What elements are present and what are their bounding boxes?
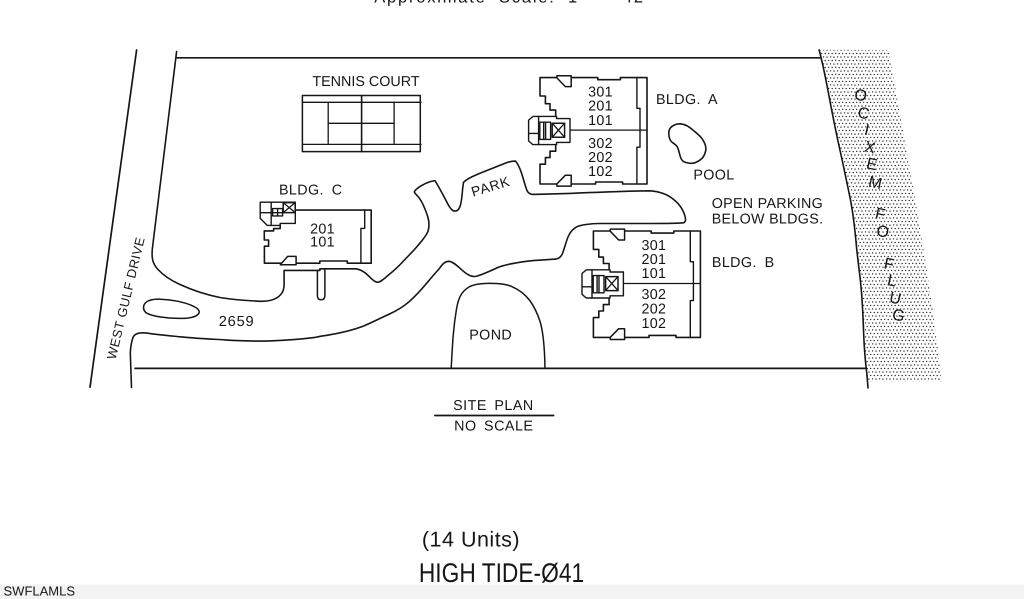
svg-text:WEST GULF DRIVE: WEST GULF DRIVE: [104, 235, 148, 360]
svg-text:TENNIS COURT: TENNIS COURT: [312, 74, 420, 90]
svg-text:POND: POND: [469, 327, 512, 343]
svg-text:102: 102: [588, 164, 613, 180]
svg-text:OPEN PARKING: OPEN PARKING: [712, 196, 823, 212]
svg-text:101: 101: [310, 235, 335, 251]
svg-text:302: 302: [642, 287, 667, 303]
svg-text:NO SCALE: NO SCALE: [454, 419, 533, 435]
svg-text:BLDG. B: BLDG. B: [712, 255, 775, 271]
svg-text:POOL: POOL: [693, 168, 734, 184]
svg-text:SITE PLAN: SITE PLAN: [453, 398, 534, 414]
svg-text:Approximate Scale: 1" = 42': Approximate Scale: 1" = 42': [374, 0, 650, 6]
svg-text:BLDG. C: BLDG. C: [279, 183, 343, 199]
svg-text:BELOW BLDGS.: BELOW BLDGS.: [712, 212, 824, 228]
svg-text:101: 101: [588, 113, 613, 129]
svg-text:(14 Units): (14 Units): [422, 528, 520, 552]
svg-text:102: 102: [642, 316, 667, 332]
svg-text:101: 101: [642, 266, 667, 282]
svg-text:2659: 2659: [219, 314, 255, 330]
svg-text:BLDG. A: BLDG. A: [656, 92, 718, 108]
svg-text:PARK: PARK: [469, 174, 511, 200]
svg-text:HIGH TIDE-Ø41: HIGH TIDE-Ø41: [419, 558, 584, 588]
svg-text:SWFLAMLS: SWFLAMLS: [4, 584, 76, 599]
